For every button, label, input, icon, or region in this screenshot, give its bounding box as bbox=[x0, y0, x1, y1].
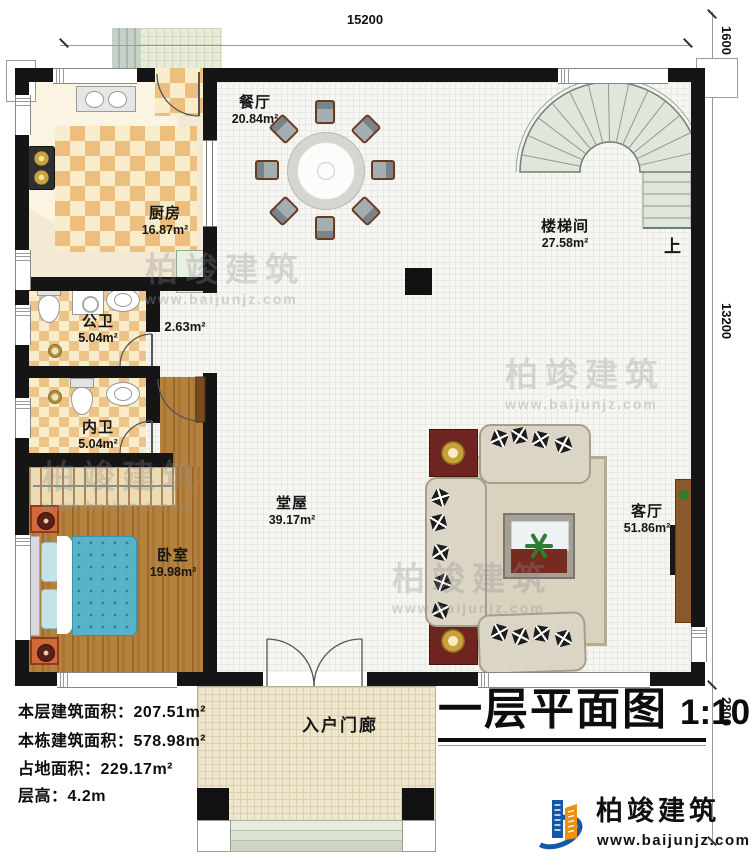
room-label-kitchen: 厨房 16.87m² bbox=[125, 206, 205, 237]
kitchen-vestibule-floor bbox=[155, 68, 203, 116]
room-label-corridor: 2.63m² bbox=[145, 320, 225, 335]
stairs-up-label: 上 bbox=[664, 232, 681, 257]
wall bbox=[691, 68, 705, 686]
porch-column-base bbox=[197, 820, 231, 852]
dining-table-center bbox=[317, 162, 335, 180]
page-title: 一层平面图 bbox=[438, 685, 668, 734]
room-label-living: 客厅 51.86m² bbox=[605, 504, 689, 535]
dimension-right-mid: 13200 bbox=[719, 303, 734, 339]
info-footprint-area: 占地面积：229.17m² bbox=[18, 755, 173, 779]
info-floor-area: 本层建筑面积：207.51m² bbox=[18, 698, 206, 722]
window bbox=[15, 305, 31, 345]
dimension-tick bbox=[59, 38, 69, 48]
wardrobe bbox=[30, 467, 176, 506]
wall bbox=[15, 366, 160, 378]
window bbox=[53, 68, 137, 84]
window bbox=[558, 68, 668, 84]
wall bbox=[367, 672, 478, 686]
stove-icon bbox=[28, 146, 55, 190]
wall bbox=[177, 672, 263, 686]
sofa-pillow bbox=[432, 544, 450, 562]
sofa-pillow bbox=[511, 427, 529, 445]
title-block: 一层平面图1:100 bbox=[438, 688, 708, 732]
title-underline bbox=[438, 738, 706, 742]
scale-label: 1:100 bbox=[680, 693, 750, 732]
dimension-tick bbox=[683, 38, 693, 48]
sink-icon bbox=[106, 382, 140, 406]
porch-floor bbox=[197, 686, 436, 822]
info-building-area: 本栋建筑面积：578.98m² bbox=[18, 727, 206, 751]
entry-door-opening bbox=[263, 672, 367, 686]
room-label-bedroom: 卧室 19.98m² bbox=[133, 548, 213, 579]
wall bbox=[15, 277, 203, 291]
window bbox=[15, 535, 31, 640]
wall bbox=[137, 68, 155, 82]
wall bbox=[146, 377, 160, 423]
porch-steps bbox=[229, 820, 404, 852]
wall bbox=[203, 373, 217, 672]
room-label-dining: 餐厅 20.84m² bbox=[215, 95, 295, 126]
dining-chair bbox=[315, 100, 335, 124]
dimension-right-top: 1600 bbox=[719, 26, 734, 55]
wall bbox=[203, 68, 558, 82]
kitchen-sliding-door bbox=[203, 140, 217, 227]
info-floor-height: 层高：4.2m bbox=[18, 782, 106, 806]
dimension-top: 15200 bbox=[320, 12, 410, 27]
room-label-hall: 堂屋 39.17m² bbox=[250, 496, 334, 527]
exterior-deck-planks bbox=[112, 28, 140, 72]
floor-drain-icon bbox=[48, 390, 62, 404]
wall bbox=[15, 672, 57, 686]
exterior-back-porch bbox=[140, 28, 222, 70]
dining-chair bbox=[371, 160, 395, 180]
dimension-line bbox=[60, 45, 690, 46]
kitchen-sink-counter bbox=[76, 86, 136, 112]
brand-logo: 柏竣建筑 www.baijunjz.com bbox=[532, 794, 742, 856]
room-label-private-bath: 内卫 5.04m² bbox=[58, 420, 138, 451]
window bbox=[57, 672, 177, 688]
plant-icon bbox=[679, 490, 689, 500]
bed bbox=[30, 536, 135, 634]
sink-icon bbox=[106, 288, 140, 312]
porch-column bbox=[402, 788, 434, 820]
window bbox=[15, 398, 31, 438]
brand-name: 柏竣建筑 bbox=[596, 798, 720, 825]
brand-logo-icon bbox=[532, 794, 590, 854]
room-label-public-bath: 公卫 5.04m² bbox=[58, 314, 138, 345]
porch-column-base bbox=[402, 820, 436, 852]
room-label-stairwell: 楼梯间 27.58m² bbox=[525, 219, 605, 250]
window bbox=[15, 250, 31, 290]
nightstand bbox=[30, 637, 59, 665]
side-table bbox=[429, 429, 478, 477]
window bbox=[691, 627, 707, 662]
structural-column bbox=[405, 268, 432, 295]
window bbox=[15, 95, 31, 135]
room-label-porch: 入户门廊 bbox=[275, 716, 405, 735]
dining-chair bbox=[315, 216, 335, 240]
wall bbox=[203, 225, 217, 293]
brand-url: www.baijunjz.com bbox=[597, 832, 750, 849]
wall bbox=[15, 453, 173, 467]
floor-drain-icon bbox=[48, 344, 62, 358]
porch-column bbox=[197, 788, 229, 820]
floor-plan-page: 柏竣建筑 www.baijunjz.com 柏竣建筑 www.baijunjz.… bbox=[0, 0, 750, 864]
nightstand bbox=[30, 505, 59, 533]
wall bbox=[650, 672, 705, 686]
sofa-pillow bbox=[533, 625, 550, 642]
title-underline-thin bbox=[438, 745, 706, 746]
coffee-table bbox=[503, 513, 575, 579]
dining-chair bbox=[255, 160, 279, 180]
